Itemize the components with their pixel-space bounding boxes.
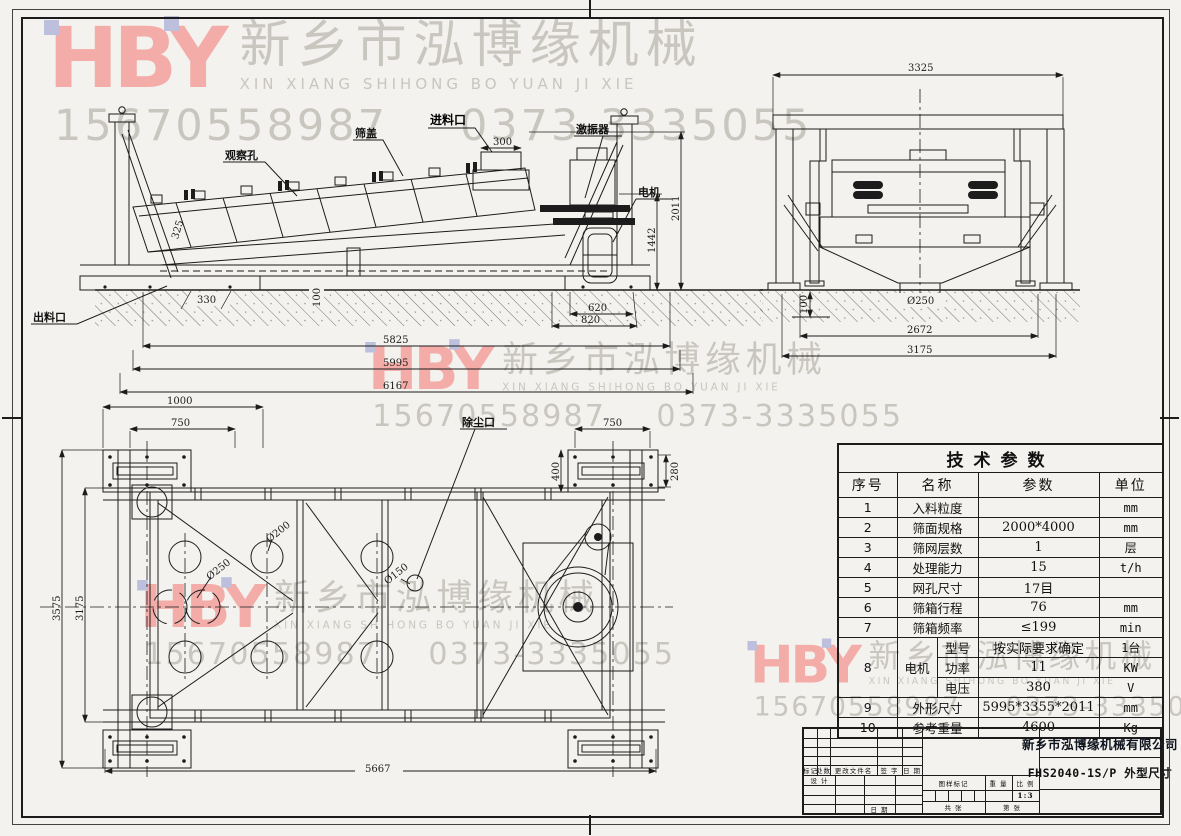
centering-mark-bottom (589, 815, 591, 835)
drawing-sheet: HBY 新乡市泓博缘机械 XIN XIANG SHIHONG BO YUAN J… (0, 0, 1181, 836)
sheet-inner-border (21, 17, 1164, 818)
centering-mark-left (2, 417, 22, 419)
centering-mark-top (589, 0, 591, 18)
centering-mark-right (1160, 417, 1179, 419)
